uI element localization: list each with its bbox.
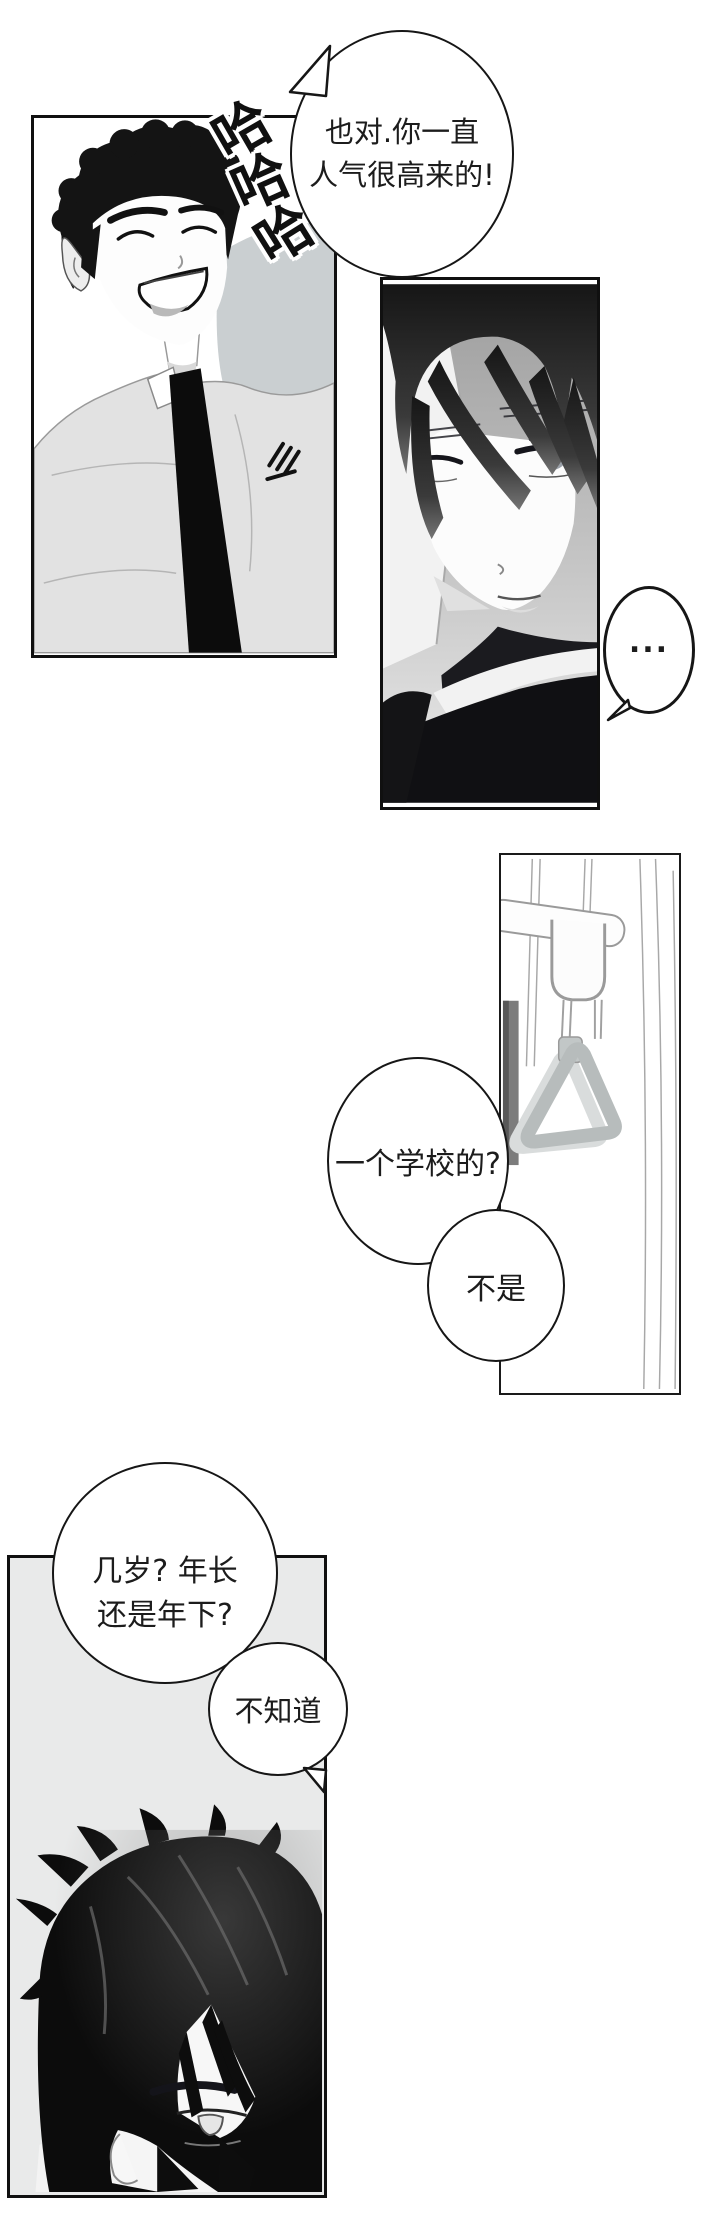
panel-dark-haired-man <box>380 277 600 810</box>
comic-page: 哈 哈 哈 也对.你一直 人气很高来的! ... 一个学校的? 不是 几岁? 年… <box>0 0 720 2222</box>
dark-haired-man-art <box>383 280 597 807</box>
speech-bubble-school-text: 一个学校的? <box>335 1139 501 1183</box>
speech-bubble-top-line2: 人气很高来的! <box>309 154 495 197</box>
speech-bubble-ellipsis: ... <box>603 586 695 714</box>
speech-bubble-no-text: 不是 <box>466 1264 526 1308</box>
speech-bubble-ellipsis-text: ... <box>629 625 669 660</box>
speech-bubble-top-line1: 也对.你一直 <box>325 111 479 154</box>
speech-bubble-age-line1: 几岁? 年长 <box>92 1550 237 1594</box>
speech-bubble-no: 不是 <box>427 1209 565 1362</box>
speech-bubble-dontknow-text: 不知道 <box>234 1688 321 1730</box>
speech-bubble-dontknow: 不知道 <box>208 1642 348 1776</box>
messy-black-hair <box>16 1804 322 2192</box>
speech-bubble-age-line2: 还是年下? <box>97 1594 233 1638</box>
speech-bubble-top: 也对.你一直 人气很高来的! <box>290 30 514 278</box>
